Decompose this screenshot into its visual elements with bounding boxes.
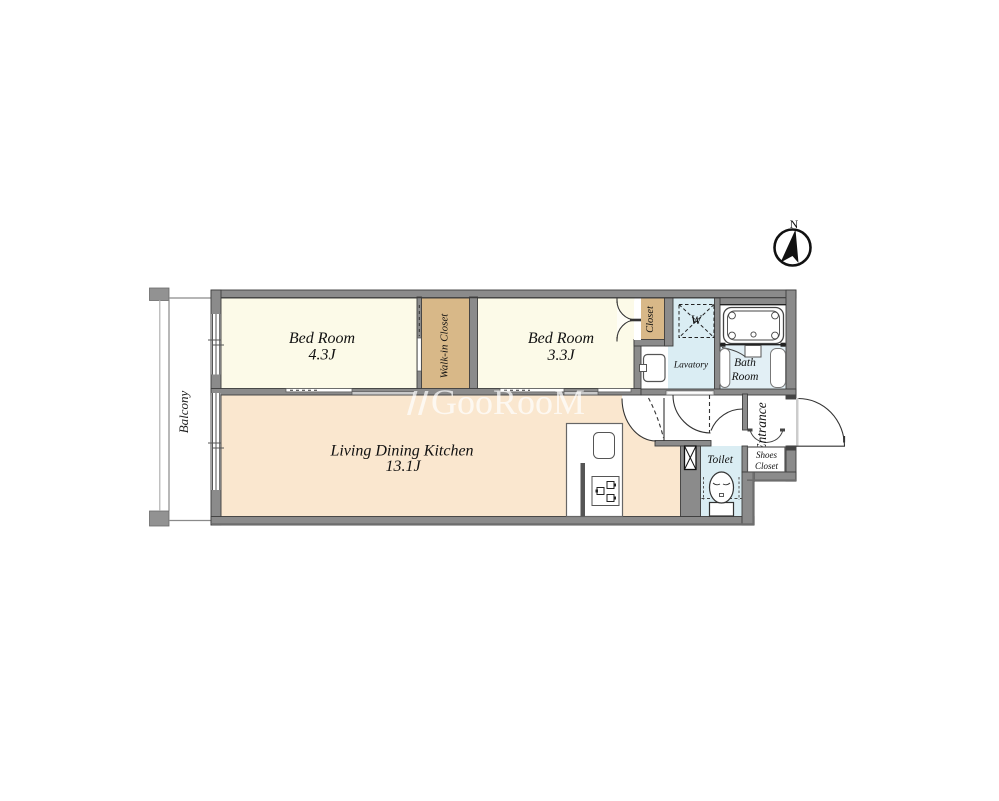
svg-text:W: W [691, 312, 703, 327]
svg-text:Entrance: Entrance [754, 402, 769, 453]
svg-text:N: N [790, 217, 799, 231]
svg-text:Bath: Bath [734, 357, 756, 369]
svg-text:3.3J: 3.3J [546, 347, 575, 364]
svg-text:Toilet: Toilet [707, 454, 734, 466]
svg-text:Shoes: Shoes [756, 450, 777, 460]
svg-text:Bed Room: Bed Room [528, 330, 594, 347]
svg-text:Lavatory: Lavatory [673, 361, 709, 371]
svg-text:4.3J: 4.3J [308, 347, 336, 364]
svg-text:Living Dining Kitchen: Living Dining Kitchen [329, 443, 473, 460]
svg-text:Walk-in Closet: Walk-in Closet [439, 313, 451, 379]
svg-text:Bed Room: Bed Room [289, 330, 355, 347]
svg-text:Closet: Closet [755, 461, 779, 471]
svg-text:Balcony: Balcony [176, 390, 191, 433]
svg-text:Closet: Closet [645, 305, 656, 333]
svg-text:GooRooM: GooRooM [431, 382, 585, 422]
svg-text:13.1J: 13.1J [385, 458, 421, 475]
svg-text:Room: Room [731, 371, 759, 383]
